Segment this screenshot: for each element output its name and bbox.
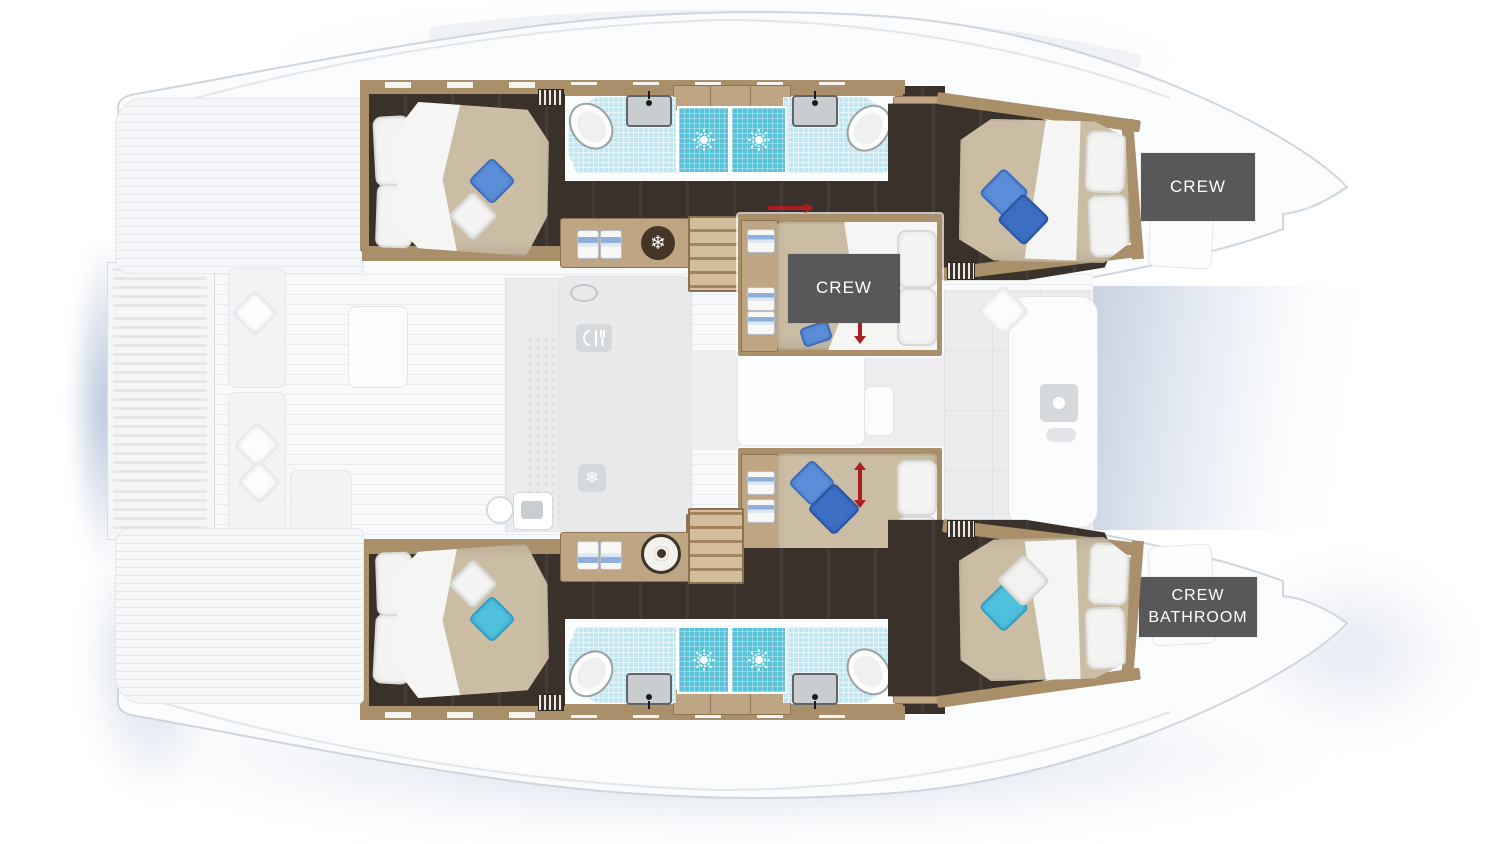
foredeck-step bbox=[1046, 428, 1076, 442]
stern-platform bbox=[107, 262, 215, 540]
towel-icon bbox=[577, 230, 599, 259]
headboard-pillow bbox=[1084, 606, 1126, 669]
aft-cabin-bed bbox=[397, 544, 549, 698]
headboard-pillow bbox=[897, 230, 937, 288]
galley-utensils-icon bbox=[576, 324, 612, 352]
hull-interior-bottom: ❄ bbox=[355, 494, 1155, 720]
vent-grate-icon bbox=[947, 520, 975, 538]
stern-quarter-bottom bbox=[115, 528, 364, 704]
platform-slats-mid bbox=[113, 317, 207, 485]
cockpit-table bbox=[348, 306, 408, 388]
towel-icon bbox=[747, 287, 775, 311]
headboard-pillow bbox=[1084, 130, 1126, 193]
vent-grate-icon bbox=[947, 262, 975, 280]
washing-machine-icon bbox=[654, 547, 669, 562]
foredeck-hatch bbox=[1040, 384, 1078, 422]
towel-icon bbox=[747, 311, 775, 335]
shower-jet-icon bbox=[693, 129, 715, 151]
crew-mid-label: CREW bbox=[788, 254, 900, 323]
salon-snowflake-icon: ❄ bbox=[578, 464, 606, 492]
crew-bathroom-label-line2: BATHROOM bbox=[1148, 607, 1247, 629]
towel-icon bbox=[600, 541, 622, 570]
sink-icon bbox=[626, 673, 672, 705]
vent-grate-icon bbox=[538, 89, 564, 106]
fore-cabin-bed bbox=[957, 117, 1132, 266]
sink-icon bbox=[792, 95, 838, 127]
shower-jet-icon bbox=[748, 129, 770, 151]
towel-icon bbox=[747, 229, 775, 253]
headboard-pillow bbox=[897, 288, 937, 346]
crew-mid-label-text: CREW bbox=[816, 277, 872, 300]
snowflake-icon: ❄ bbox=[641, 534, 681, 574]
crew-bathroom-label-line1: CREW bbox=[1172, 585, 1225, 607]
snowflake-glyph: ❄ bbox=[650, 234, 666, 253]
crew-fore-label-text: CREW bbox=[1170, 176, 1226, 199]
towel-icon bbox=[577, 541, 599, 570]
shower-left bbox=[677, 626, 730, 694]
shower-left bbox=[677, 106, 730, 174]
platform-slats-top bbox=[113, 268, 207, 312]
cubby-column bbox=[741, 220, 778, 352]
towel-icon bbox=[600, 230, 622, 259]
shower-jet-icon bbox=[693, 649, 715, 671]
shower-right bbox=[730, 106, 787, 174]
master-pillow-faded bbox=[864, 386, 894, 436]
snowflake-icon: ❄ bbox=[641, 226, 675, 260]
deck-plan-canvas: ❄ bbox=[0, 0, 1500, 844]
master-bed-faded bbox=[737, 352, 865, 446]
salon-floor-mat bbox=[526, 336, 554, 518]
blue-pillow bbox=[799, 320, 834, 348]
shower-right bbox=[730, 626, 787, 694]
vent-grate-icon bbox=[538, 694, 564, 711]
galley-strip: ❄ bbox=[560, 218, 690, 268]
galley-strip: ❄ bbox=[560, 532, 690, 582]
stairs bbox=[688, 508, 744, 584]
sink-icon bbox=[626, 95, 672, 127]
aft-cabin-left-wall bbox=[360, 94, 369, 250]
stairs bbox=[688, 216, 744, 292]
stern-quarter-top bbox=[115, 98, 364, 274]
aft-cabin-bed bbox=[397, 102, 549, 256]
door-arrow bbox=[768, 203, 814, 213]
sink-icon bbox=[792, 673, 838, 705]
bed-slide-arrow bbox=[854, 322, 866, 344]
crew-bathroom-label: CREW BATHROOM bbox=[1139, 577, 1257, 637]
shower-jet-icon bbox=[748, 649, 770, 671]
fore-cabin-bed bbox=[957, 535, 1132, 684]
towel-icon bbox=[747, 471, 775, 495]
crew-fore-label: CREW bbox=[1141, 153, 1255, 221]
